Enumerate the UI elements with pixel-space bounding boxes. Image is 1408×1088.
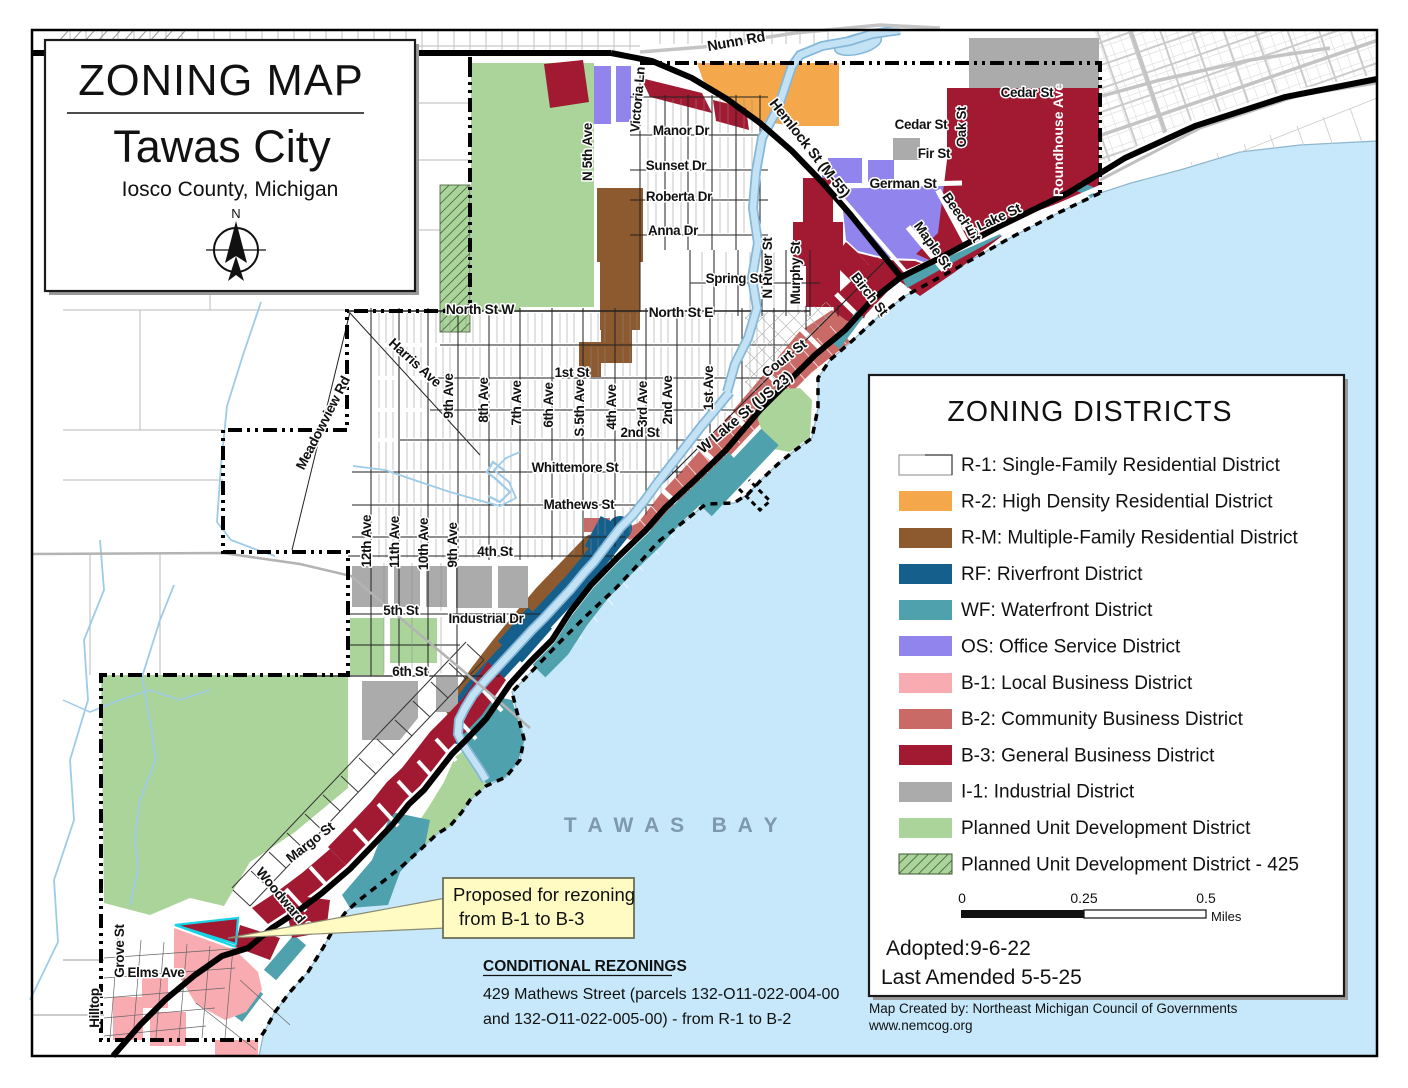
svg-text:R-M: Multiple-Family Residenti: R-M: Multiple-Family Residential Distric…: [961, 528, 1298, 549]
svg-text:WF: Waterfront District: WF: Waterfront District: [961, 600, 1153, 621]
svg-text:4th Ave: 4th Ave: [604, 384, 619, 429]
svg-text:4th St: 4th St: [477, 544, 513, 559]
svg-text:Tawas City: Tawas City: [113, 121, 331, 172]
svg-text:Grove St: Grove St: [112, 923, 127, 977]
svg-text:Roundhouse Ave: Roundhouse Ave: [1050, 83, 1066, 197]
svg-text:8th Ave: 8th Ave: [476, 377, 491, 422]
svg-text:OS: Office Service District: OS: Office Service District: [961, 637, 1181, 658]
svg-text:Mathews St: Mathews St: [544, 497, 616, 512]
svg-text:from B-1 to B-3: from B-1 to B-3: [459, 908, 584, 929]
svg-text:Elms Ave: Elms Ave: [128, 965, 185, 980]
svg-text:Last Amended 5-5-25: Last Amended 5-5-25: [881, 966, 1082, 989]
svg-text:North St E: North St E: [649, 305, 714, 320]
svg-text:N River St: N River St: [760, 237, 775, 299]
svg-text:Sunset Dr: Sunset Dr: [646, 158, 708, 173]
svg-text:Adopted:9-6-22: Adopted:9-6-22: [886, 937, 1031, 960]
svg-text:3rd Ave: 3rd Ave: [635, 381, 650, 427]
svg-text:ZONING MAP: ZONING MAP: [78, 57, 364, 105]
svg-text:N 5th Ave: N 5th Ave: [580, 123, 595, 181]
svg-text:0: 0: [958, 890, 966, 906]
svg-text:Planned Unit Development Distr: Planned Unit Development District: [961, 818, 1251, 839]
svg-text:Hilltop: Hilltop: [87, 988, 102, 1028]
svg-text:Miles: Miles: [1211, 909, 1242, 924]
svg-text:R-2: High Density Residential: R-2: High Density Residential District: [961, 491, 1273, 512]
svg-text:10th Ave: 10th Ave: [416, 518, 431, 570]
svg-text:ZONING DISTRICTS: ZONING DISTRICTS: [947, 396, 1232, 428]
svg-text:1st Ave: 1st Ave: [701, 366, 716, 411]
svg-text:Proposed for rezoning: Proposed for rezoning: [453, 884, 635, 905]
svg-text:Iosco County, Michigan: Iosco County, Michigan: [122, 178, 339, 201]
svg-text:B-2: Community Business Distri: B-2: Community Business District: [961, 709, 1244, 730]
svg-text:B-1: Local Business District: B-1: Local Business District: [961, 673, 1193, 694]
svg-text:Spring St: Spring St: [706, 271, 764, 286]
svg-text:S 5th Ave: S 5th Ave: [572, 379, 587, 436]
svg-text:6th St: 6th St: [392, 664, 428, 679]
svg-text:Whittemore St: Whittemore St: [532, 460, 620, 475]
svg-text:6th Ave: 6th Ave: [541, 382, 556, 427]
svg-text:0.25: 0.25: [1070, 890, 1097, 906]
svg-text:German St: German St: [869, 176, 937, 191]
svg-text:Fir St: Fir St: [918, 146, 951, 161]
svg-text:CONDITIONAL REZONINGS: CONDITIONAL REZONINGS: [483, 958, 687, 975]
svg-text:Cedar St: Cedar St: [895, 117, 949, 132]
svg-text:0.5: 0.5: [1196, 890, 1216, 906]
svg-text:I-1: Industrial District: I-1: Industrial District: [961, 782, 1135, 803]
svg-text:9th Ave: 9th Ave: [445, 522, 460, 567]
svg-text:Map Created by: Northeast Mich: Map Created by: Northeast Michigan Counc…: [869, 1001, 1238, 1016]
svg-text:2nd Ave: 2nd Ave: [660, 376, 675, 425]
svg-text:429 Mathews Street (parcels 13: 429 Mathews Street (parcels 132-O11-022-…: [483, 986, 839, 1003]
svg-text:9th Ave: 9th Ave: [441, 373, 456, 418]
svg-text:Murphy St: Murphy St: [788, 241, 803, 305]
svg-text:Cedar St: Cedar St: [1001, 85, 1055, 100]
svg-text:T A W A S B A Y: T A W A S B A Y: [564, 814, 780, 837]
svg-text:7th Ave: 7th Ave: [509, 380, 524, 425]
svg-text:11th Ave: 11th Ave: [387, 516, 402, 568]
svg-text:12th Ave: 12th Ave: [359, 515, 374, 567]
svg-text:N: N: [231, 206, 240, 221]
svg-text:RF: Riverfront District: RF: Riverfront District: [961, 564, 1143, 585]
svg-text:Manor Dr: Manor Dr: [653, 123, 710, 138]
svg-text:Planned Unit Development Distr: Planned Unit Development District - 425: [961, 854, 1299, 875]
svg-text:Anna Dr: Anna Dr: [648, 223, 699, 238]
svg-text:and 132-O11-022-005-00) - from: and 132-O11-022-005-00) - from R-1 to B-…: [483, 1011, 791, 1028]
svg-text:Roberta Dr: Roberta Dr: [646, 189, 713, 204]
svg-text:Industrial Dr: Industrial Dr: [449, 611, 525, 626]
svg-text:1st St: 1st St: [555, 365, 591, 380]
svg-text:R-1: Single-Family Residential: R-1: Single-Family Residential District: [961, 455, 1281, 476]
svg-text:5th St: 5th St: [383, 603, 419, 618]
svg-text:www.nemcog.org: www.nemcog.org: [868, 1018, 973, 1033]
svg-text:B-3: General Business District: B-3: General Business District: [961, 745, 1215, 766]
svg-text:Oak St: Oak St: [954, 106, 969, 147]
svg-text:North St W: North St W: [446, 302, 516, 317]
